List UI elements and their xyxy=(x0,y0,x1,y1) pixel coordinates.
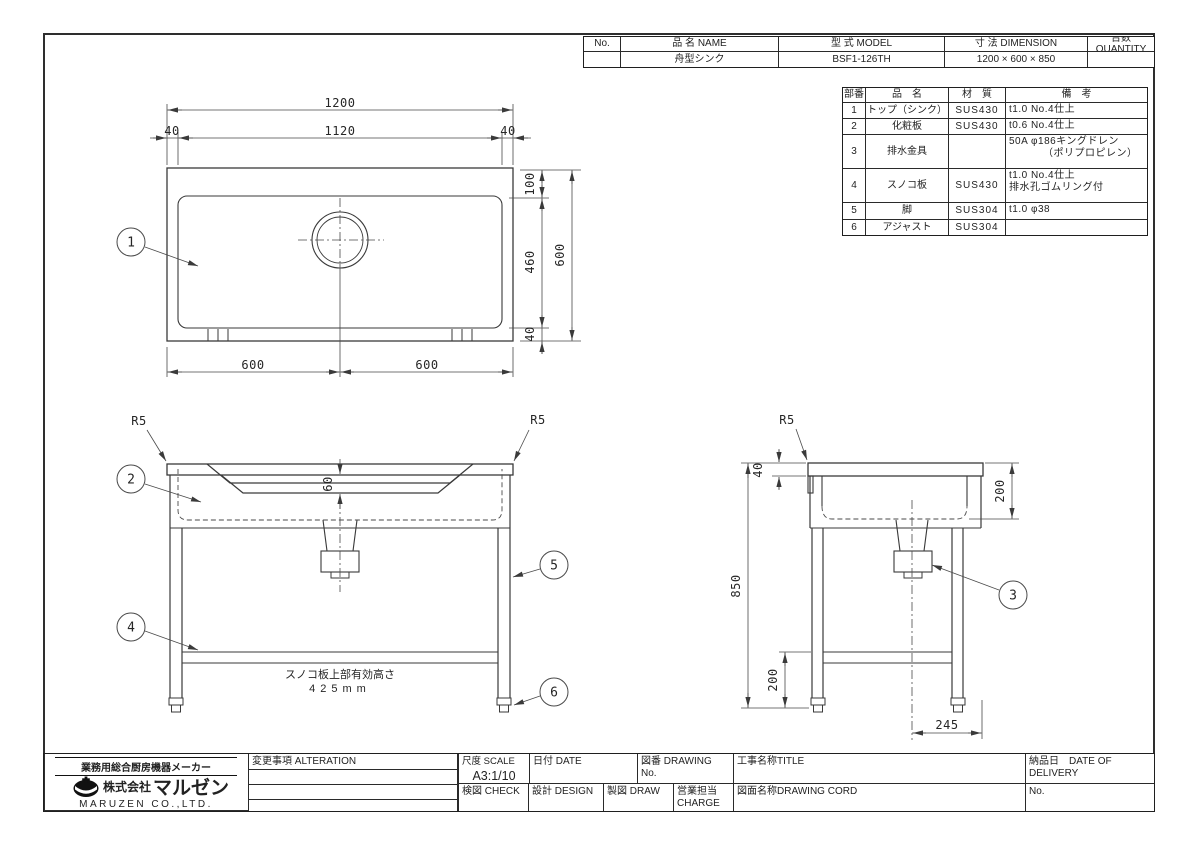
basin-rim-inner-front xyxy=(221,475,460,493)
r5-label-right: R5 xyxy=(530,413,545,427)
balloon-6-number: 6 xyxy=(550,686,558,701)
r5-leader-right xyxy=(514,430,529,461)
drain-centerlines xyxy=(298,198,384,264)
r5-leader-left xyxy=(147,430,166,461)
balloon-3-number: 3 xyxy=(1009,589,1017,604)
balloon-1: 1 xyxy=(117,228,198,266)
adjuster-front-right xyxy=(497,698,511,705)
shelf-rails-side xyxy=(823,652,952,663)
drawing-canvas: 1200 1120 40 40 600 600 100 460 40 600 1 xyxy=(0,0,1200,848)
drain-collar-side xyxy=(894,551,932,572)
balloon-1-number: 1 xyxy=(127,236,135,251)
balloon-1-leader xyxy=(145,247,198,266)
front-view-dimensions xyxy=(147,430,529,509)
dim-600-bottom-right: 600 xyxy=(415,358,438,372)
balloon-4-leader xyxy=(145,631,198,650)
dim-200-top: 200 xyxy=(993,479,1007,502)
adjuster-tip-front-right xyxy=(500,705,509,712)
basin-walls-side xyxy=(822,476,967,506)
dim-1120: 1120 xyxy=(325,124,356,138)
adjuster-tip-side-right xyxy=(954,705,963,712)
shelf-height-note-line1: スノコ板上部有効高さ xyxy=(285,667,395,681)
top-view-centerlines xyxy=(298,198,384,264)
dim-600-side: 600 xyxy=(553,243,567,266)
adjuster-side-left xyxy=(811,698,825,705)
r5-label-left: R5 xyxy=(131,414,146,428)
technical-drawing-sheet: { "colors": { "ink": "#2a2a2a", "line": … xyxy=(0,0,1200,848)
adjuster-tip-side-left xyxy=(814,705,823,712)
balloon-5-leader xyxy=(513,569,540,577)
dim-100: 100 xyxy=(523,172,537,195)
side-view xyxy=(808,463,983,712)
balloon-3-leader xyxy=(932,565,999,590)
balloon-2-leader xyxy=(145,484,201,502)
dim-40-right: 40 xyxy=(500,124,515,138)
legs-side xyxy=(812,528,963,698)
adjuster-side-right xyxy=(951,698,965,705)
dim-600-bottom-left: 600 xyxy=(241,358,264,372)
dim-245: 245 xyxy=(935,718,958,732)
balloon-4-number: 4 xyxy=(127,621,135,636)
countertop-band-side xyxy=(808,463,983,476)
shelf-height-note-line2: 425mm xyxy=(309,683,371,695)
basin-hidden-outline-side xyxy=(822,506,967,519)
top-view-texts: 1200 1120 40 40 600 600 100 460 40 600 xyxy=(164,96,567,372)
top-view-dimensions xyxy=(150,104,581,377)
dim-60: 60 xyxy=(321,476,335,491)
balloon-2-number: 2 xyxy=(127,473,135,488)
shelf-rails-front xyxy=(182,652,498,663)
adjuster-front-left xyxy=(169,698,183,705)
adjuster-tip-front-left xyxy=(172,705,181,712)
side-view-texts: R5 40 850 200 200 245 xyxy=(729,413,1007,732)
balloon-6-leader xyxy=(514,696,540,705)
r5-leader-side xyxy=(796,429,807,460)
dim-40-side: 40 xyxy=(751,462,765,477)
balloon-5-number: 5 xyxy=(550,559,558,574)
drain-tail-side xyxy=(904,572,922,578)
front-view-balloon-numbers: 2 4 5 6 xyxy=(127,473,558,701)
dim-40-left: 40 xyxy=(164,124,179,138)
balloon-3: 3 xyxy=(932,565,1027,609)
dim-1200: 1200 xyxy=(325,96,356,110)
dim-40-bottom: 40 xyxy=(523,326,537,341)
dim-460: 460 xyxy=(523,250,537,273)
side-view-hidden xyxy=(822,506,967,519)
front-view-texts: R5 R5 60 スノコ板上部有効高さ 425mm xyxy=(131,413,545,695)
dim-850: 850 xyxy=(729,574,743,597)
dim-200-bottom: 200 xyxy=(766,668,780,691)
r5-label-side: R5 xyxy=(779,413,794,427)
